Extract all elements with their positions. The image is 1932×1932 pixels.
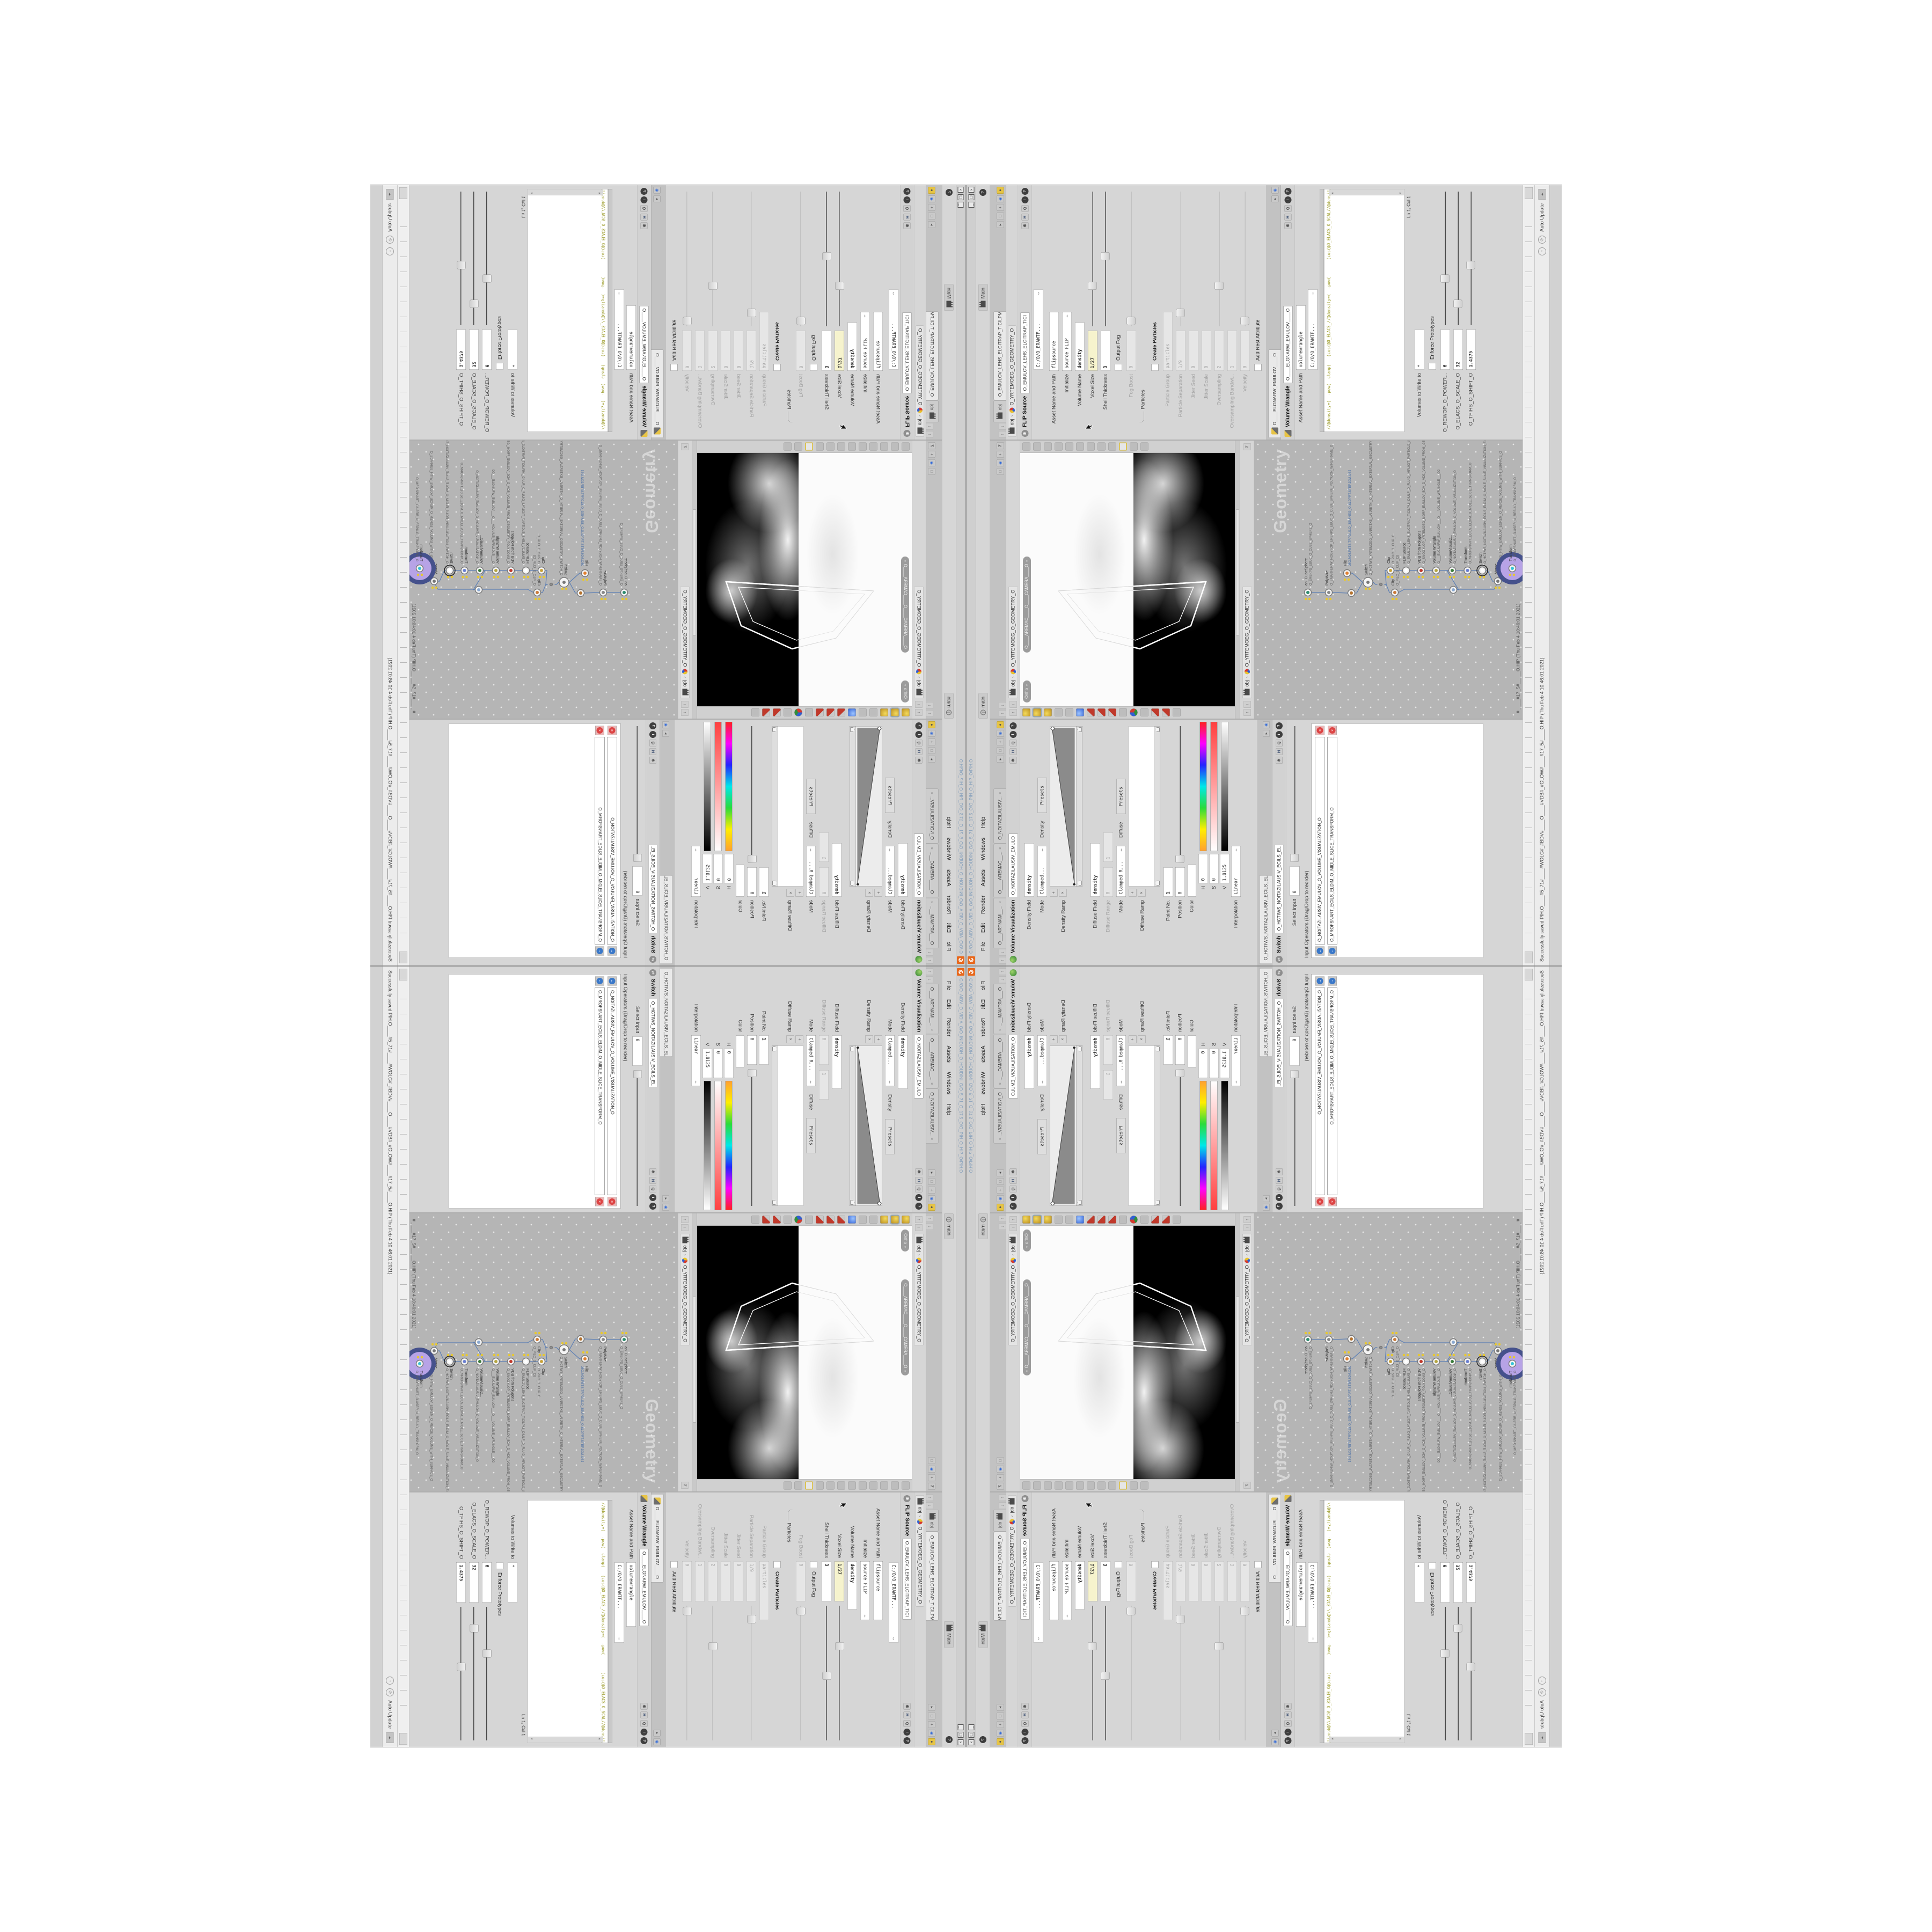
info-icon[interactable]: i — [1276, 1194, 1283, 1201]
pane-tab[interactable]: O_NOITAZILAUSIV...× — [926, 1089, 939, 1144]
ramp-marker[interactable] — [1155, 1047, 1160, 1051]
node-flag[interactable] — [1348, 1351, 1350, 1354]
menu-item[interactable]: File — [946, 942, 952, 951]
close-tab-icon[interactable]: × — [998, 1082, 1002, 1085]
node-flag[interactable] — [508, 1354, 511, 1357]
checkbox-label[interactable]: Output Fog — [811, 1571, 817, 1597]
pane-menu-icon[interactable]: ▸ — [928, 756, 935, 763]
asset-path-field[interactable]: C:/O/O_ERAWTF... — [889, 289, 898, 370]
vex-snippet-editor[interactable]: //@density=( -pow( clamp( (cos(@O_ELACS_… — [1320, 1500, 1404, 1743]
saturation-input[interactable]: 0 — [1209, 1049, 1219, 1078]
checkbox[interactable] — [496, 363, 503, 370]
refresh-icon[interactable]: ⟳ — [386, 236, 394, 244]
display-option-icon[interactable] — [869, 1481, 877, 1489]
node-flag[interactable] — [1395, 1332, 1398, 1335]
up-arrow-icon[interactable]: ↑ — [926, 957, 933, 964]
viewport-tool-icon[interactable] — [1173, 1216, 1181, 1224]
input-operator-field[interactable]: O_NOITAZILAUSIV_EMULOV_O_VOLUME_VISUALIZ… — [1315, 737, 1325, 944]
maximize-button[interactable]: ❐ — [968, 194, 974, 200]
presets-button[interactable]: Presets — [1116, 1118, 1126, 1153]
gear-icon[interactable]: ✱ — [649, 757, 656, 764]
diffuse-field-input[interactable]: density — [832, 1035, 841, 1089]
node-flag[interactable] — [1326, 598, 1328, 601]
mode2-dropdown[interactable]: Clamped R... — [1116, 846, 1126, 897]
viewport-tool-icon[interactable] — [848, 708, 856, 716]
viewport-tool-icon[interactable] — [1097, 708, 1106, 716]
maximize-button[interactable]: ❐ — [958, 194, 964, 200]
code-scrollbar-top[interactable] — [1320, 189, 1324, 432]
node[interactable] — [550, 1346, 553, 1349]
checkbox-label[interactable]: Create Particles — [1152, 1571, 1158, 1610]
down-arrow-icon[interactable]: ↓ — [926, 702, 933, 709]
display-option-icon[interactable] — [816, 1481, 824, 1489]
checkbox[interactable] — [1255, 364, 1262, 371]
viewport-tool-icon[interactable] — [869, 708, 877, 716]
switch-name-field[interactable]: O_HCTIWS_NOITAZILAUSIV_ECILS_EL — [648, 845, 657, 933]
close-tab-icon[interactable]: × — [998, 1029, 1002, 1031]
help-circle-icon[interactable]: ? — [916, 722, 923, 729]
breadcrumb[interactable]: obj › O_YRTEMOEG_O_GEOMETRY_O — [916, 1495, 924, 1607]
value-input[interactable]: 1.8125 — [1220, 854, 1230, 883]
info-icon[interactable]: i — [1284, 196, 1291, 203]
reorder-button[interactable]: ← — [1328, 947, 1337, 956]
input-operator-field[interactable]: O_MROFSNART_ECILS_ELDIM_O_MIDLE_SLICE_TR… — [1327, 988, 1337, 1195]
display-option-icon[interactable] — [1022, 1481, 1030, 1489]
ramp-marker[interactable] — [1078, 1047, 1082, 1051]
input-operator-field[interactable]: O_MROFSNART_ECILS_ELDIM_O_MIDLE_SLICE_TR… — [1327, 737, 1337, 944]
param-field[interactable]: 1 — [1227, 1561, 1237, 1601]
mode2-dropdown[interactable]: Clamped R... — [806, 846, 816, 897]
pane-menu-icon[interactable]: ▸ — [1263, 1195, 1270, 1202]
param-field[interactable]: 0 — [1189, 1561, 1198, 1601]
node-flag[interactable] — [604, 1332, 607, 1335]
input-operator-field[interactable]: O_NOITAZILAUSIV_EMULOV_O_VOLUME_VISUALIZ… — [1315, 988, 1325, 1195]
param-slider[interactable] — [456, 1607, 466, 1740]
minimize-button[interactable]: _ — [958, 202, 964, 208]
pane-snapshot-icon[interactable]: ● — [928, 1738, 935, 1745]
up-arrow-icon[interactable]: ↑ — [916, 709, 923, 716]
delete-operator-button[interactable]: × — [608, 1197, 617, 1206]
param-slider[interactable] — [1453, 1607, 1463, 1740]
menu-item[interactable]: Assets — [980, 1045, 986, 1063]
viewport-tool-icon[interactable] — [1108, 708, 1116, 716]
vex-code[interactable]: //@density=( -pow( clamp( (cos(@O_ELACS_… — [1324, 1500, 1404, 1743]
delete-point-button[interactable]: × — [1138, 1035, 1146, 1043]
delete-operator-button[interactable]: × — [608, 726, 617, 735]
help-circle-icon[interactable]: ? — [641, 188, 648, 195]
viewport-tool-icon[interactable] — [1055, 1216, 1063, 1224]
wrangle-name-field[interactable]: O____ELGNARW_EMULOV____O — [1283, 306, 1292, 383]
checkbox[interactable] — [1115, 1561, 1122, 1568]
checkbox-label[interactable]: Create Particles — [774, 322, 780, 361]
up-arrow-icon[interactable]: ↑ — [1243, 1216, 1250, 1223]
up-arrow-icon[interactable]: ↑ — [926, 1215, 933, 1222]
pane-link-icon[interactable]: ◉ — [997, 730, 1004, 737]
auto-update-selector[interactable]: Auto Update — [387, 1700, 393, 1729]
down-arrow-icon[interactable]: ↓ — [926, 976, 933, 983]
display-option-icon[interactable] — [859, 1481, 867, 1489]
value-slider[interactable] — [704, 1081, 711, 1210]
help-circle-icon[interactable]: ? — [1021, 1737, 1028, 1744]
hue-input[interactable]: 0 — [1198, 854, 1208, 883]
timeline-ticks[interactable] — [1525, 999, 1532, 1715]
mode-dropdown[interactable]: Clamped... — [885, 846, 895, 897]
pane-link-icon[interactable]: ◉ — [654, 1738, 661, 1745]
pane-link-icon[interactable]: ◉ — [928, 730, 935, 737]
ramp-marker[interactable] — [1155, 1201, 1160, 1205]
presets-button[interactable]: Presets — [1037, 1119, 1047, 1154]
pane-link-icon[interactable]: ◉ — [1263, 721, 1270, 728]
menu-item[interactable]: Help — [946, 817, 952, 829]
flip-name-field[interactable]: O_EMULOV_LEHS_ELCITRAP_TICI — [903, 1539, 912, 1619]
add-point-button[interactable]: + — [874, 889, 882, 897]
delete-point-button[interactable]: × — [865, 889, 873, 897]
pane-maximize-icon[interactable]: □ — [997, 1178, 1004, 1185]
param-field[interactable]: flipsource — [1049, 312, 1059, 371]
display-option-icon[interactable] — [837, 1481, 845, 1489]
pane-menu-icon[interactable]: ▸ — [928, 1169, 935, 1176]
param-field[interactable]: 0 — [1189, 331, 1198, 371]
delete-point-button[interactable]: × — [1138, 889, 1146, 897]
display-option-icon[interactable] — [784, 1481, 792, 1489]
viewport-tool-icon[interactable] — [891, 1216, 899, 1224]
radial-menu-selector[interactable]: main — [944, 1213, 954, 1239]
viewport-tool-icon[interactable] — [902, 1216, 910, 1224]
checkbox[interactable] — [810, 364, 817, 371]
node-flag[interactable] — [431, 587, 434, 589]
position-slider[interactable] — [1175, 1069, 1185, 1206]
node-flag[interactable] — [539, 576, 541, 579]
menu-item[interactable]: Render — [980, 1018, 986, 1036]
param-slider[interactable] — [1214, 192, 1224, 326]
breadcrumb[interactable]: obj › O_YRTEMOEG_O_GEOMETRY_O — [1008, 1495, 1016, 1607]
vex-code[interactable]: //@density=( -pow( clamp( (cos(@O_ELACS_… — [1324, 189, 1404, 432]
node-flag[interactable] — [1418, 576, 1421, 579]
close-tab-icon[interactable]: × — [930, 901, 934, 903]
node-flag[interactable] — [527, 1354, 530, 1357]
section-label[interactable]: Particles — [786, 1523, 792, 1542]
node-flag[interactable] — [497, 1354, 500, 1357]
viewport-tool-icon[interactable] — [784, 1216, 792, 1224]
node-flag[interactable] — [1344, 1351, 1346, 1354]
node-flag[interactable] — [565, 588, 568, 590]
node-flag[interactable] — [1308, 1332, 1311, 1335]
pane-link-icon[interactable]: ◉ — [1272, 1738, 1279, 1745]
param-field[interactable]: 2 — [708, 1561, 718, 1601]
help-circle-icon[interactable]: ? — [904, 188, 911, 195]
search-icon[interactable]: Q — [1284, 205, 1291, 212]
up-arrow-icon[interactable]: ↑ — [999, 710, 1006, 717]
wrangle-asset-name[interactable]: volumewrangle — [1296, 305, 1306, 370]
close-button[interactable]: × — [968, 1739, 974, 1745]
checkbox[interactable] — [1429, 363, 1436, 370]
camera-selector-pill[interactable]: O____AREMAC____O____CAMERA____O▾ — [901, 557, 909, 653]
ramp-marker[interactable] — [851, 727, 855, 731]
viewport-tool-icon[interactable] — [1076, 708, 1084, 716]
display-option-icon[interactable] — [1087, 443, 1095, 451]
view-mode-pill[interactable]: Ortho▾ — [1023, 680, 1031, 702]
node-flag[interactable] — [1392, 598, 1394, 601]
node-flag[interactable] — [497, 576, 500, 579]
pane-link-icon[interactable]: ◉ — [997, 1466, 1004, 1473]
node-flag[interactable] — [421, 1356, 423, 1359]
select-input-slider[interactable] — [633, 1070, 642, 1206]
radial-menu-selector[interactable]: main — [978, 1213, 988, 1239]
diffuse-ramp-widget[interactable] — [1129, 726, 1160, 887]
node-flag[interactable] — [1387, 1354, 1390, 1357]
close-tab-icon[interactable]: × — [998, 792, 1002, 794]
node-flag[interactable] — [421, 574, 423, 576]
menu-item[interactable]: File — [946, 981, 952, 990]
pane-tab[interactable]: O___ARTNAM__...× — [926, 984, 939, 1034]
mode2-dropdown[interactable]: Clamped R... — [1116, 1035, 1126, 1086]
pane-link-icon[interactable]: ◉ — [1263, 1204, 1270, 1211]
checkbox[interactable] — [810, 1561, 817, 1568]
node-flag[interactable] — [1513, 1356, 1516, 1359]
node-flag[interactable] — [601, 1332, 603, 1335]
network-editor[interactable]: Geometry # ____#17_5#_____O.HIP (Thu Feb… — [409, 1213, 678, 1491]
display-option-icon[interactable] — [891, 1481, 899, 1489]
camera-selector-pill[interactable]: O____AREMAC____O____CAMERA____O▾ — [901, 1279, 909, 1375]
pane-menu-icon[interactable]: ▸ — [1263, 730, 1270, 737]
node-flag[interactable] — [447, 576, 450, 579]
viewport-tool-icon[interactable] — [1065, 708, 1073, 716]
display-option-icon[interactable] — [837, 443, 845, 451]
pane-split-icon[interactable]: + — [997, 204, 1004, 211]
up-arrow-icon[interactable]: ↑ — [1243, 709, 1250, 716]
pane-maximize-icon[interactable]: □ — [928, 468, 935, 475]
param-field[interactable]: 0 — [1202, 1561, 1211, 1601]
checkbox[interactable] — [774, 1561, 781, 1568]
search-icon[interactable]: Q — [641, 1720, 648, 1727]
playbar-start-cap[interactable] — [399, 952, 407, 963]
pane-maximize-icon[interactable]: □ — [928, 1178, 935, 1185]
section-label[interactable]: Particles — [786, 390, 792, 409]
node-flag[interactable] — [1387, 576, 1390, 579]
pane-menu-icon[interactable]: ▸ — [928, 1704, 935, 1711]
select-input-field[interactable]: 0 — [1290, 1036, 1300, 1066]
position-slider[interactable] — [747, 726, 757, 863]
param-field[interactable]: 3 — [822, 1561, 831, 1601]
pane-split-icon[interactable]: + — [997, 451, 1004, 458]
checkbox[interactable] — [1115, 364, 1122, 371]
pane-tab[interactable]: O____AREMAC__...× — [926, 844, 939, 897]
help-icon[interactable]: ? — [979, 1736, 986, 1743]
viewport-tool-icon[interactable] — [762, 1216, 770, 1224]
close-button[interactable]: × — [958, 187, 964, 193]
param-field[interactable]: 3 — [1101, 1561, 1110, 1601]
breadcrumb[interactable]: obj › O_YRTEMOEG_O_GEOMETRY_O — [914, 1234, 924, 1345]
scene-viewport[interactable]: Ortho▾ O____AREMAC____O____CAMERA____O▾ — [1020, 441, 1235, 719]
menu-item[interactable]: Windows — [946, 837, 952, 860]
param-field[interactable]: 0 — [796, 1561, 806, 1601]
wrangle-asset-name[interactable]: volumewrangle — [626, 1562, 636, 1627]
viewport-tool-icon[interactable] — [816, 708, 824, 716]
node-flag[interactable] — [512, 1354, 515, 1357]
diffuse-field-input[interactable]: density — [1091, 1035, 1100, 1089]
gear-icon[interactable]: ✱ — [904, 222, 911, 229]
code-scrollbar[interactable] — [1329, 189, 1404, 195]
pin-icon[interactable]: ⊼ — [1243, 1482, 1250, 1489]
section-label[interactable]: Particles — [1140, 390, 1146, 409]
node-flag[interactable] — [1453, 576, 1455, 579]
param-field[interactable]: 32 — [469, 330, 479, 370]
help-circle-icon[interactable]: ? — [649, 1203, 656, 1210]
color-swatch[interactable] — [1188, 865, 1196, 897]
param-slider[interactable] — [1088, 1606, 1097, 1740]
param-slider[interactable] — [796, 1606, 806, 1740]
node-flag[interactable] — [465, 576, 468, 579]
param-field[interactable]: 1/27 — [1088, 1561, 1097, 1601]
pane-maximize-icon[interactable]: □ — [997, 1457, 1004, 1464]
checkbox-label[interactable]: Add Rest Attribute — [671, 319, 677, 361]
wrangle-name-field[interactable]: O____ELGNARW_EMULOV____O — [1283, 1549, 1292, 1626]
wrangle-pane-tab[interactable]: O____ELGNARW_EMULOV____O — [652, 1494, 664, 1582]
gear-icon[interactable]: ✱ — [1009, 1168, 1016, 1175]
node-flag[interactable] — [1479, 1354, 1482, 1357]
viewport-tool-icon[interactable] — [826, 708, 835, 716]
display-option-icon[interactable] — [902, 1481, 910, 1489]
node-flag[interactable] — [1395, 598, 1398, 601]
info-icon[interactable]: i — [649, 731, 656, 738]
refresh-icon[interactable]: ⟳ — [1538, 1688, 1546, 1696]
node-flag[interactable] — [604, 598, 607, 601]
param-field[interactable]: 1 — [695, 1561, 705, 1601]
auto-update-selector[interactable]: Auto Update — [1539, 1700, 1545, 1729]
add-point-button[interactable]: + — [874, 1035, 882, 1043]
param-slider[interactable] — [469, 192, 479, 325]
pane-menu-icon[interactable]: ▸ — [1272, 195, 1279, 202]
viewport-tool-icon[interactable] — [1119, 708, 1127, 716]
node-flag[interactable] — [1391, 576, 1394, 579]
checkbox-label[interactable]: Create Particles — [774, 1571, 780, 1610]
param-slider[interactable] — [822, 1606, 831, 1740]
display-option-icon[interactable] — [859, 443, 867, 451]
node-flag[interactable] — [1509, 574, 1512, 576]
viewport-tool-icon[interactable] — [1162, 1216, 1170, 1224]
obj-tab[interactable]: obj — [994, 401, 1006, 422]
pane-tab[interactable]: O____AREMAC__...× — [926, 1035, 939, 1088]
maximize-button[interactable]: ❐ — [968, 1732, 974, 1738]
viewport-tool-icon[interactable] — [826, 1216, 835, 1224]
help-circle-icon[interactable]: ? — [1284, 1737, 1291, 1744]
node-flag[interactable] — [1308, 598, 1311, 601]
display-option-icon[interactable] — [826, 443, 835, 451]
node-flag[interactable] — [462, 1354, 464, 1357]
param-slider[interactable] — [1176, 192, 1185, 326]
menu-item[interactable]: Render — [980, 896, 986, 914]
display-option-icon[interactable] — [1140, 1481, 1148, 1489]
node-graph[interactable]: an_CubeSphereO_EREHPS_EBUC_O_CUBE_SPHERE… — [409, 441, 678, 719]
pin-icon[interactable]: ⊼ — [682, 1482, 689, 1489]
node-flag[interactable] — [586, 1351, 589, 1354]
breadcrumb[interactable]: obj › O_YRTEMOEG_O_GEOMETRY_O — [1242, 1234, 1252, 1345]
playbar-start-cap[interactable] — [1525, 969, 1533, 980]
pane-maximize-icon[interactable]: □ — [997, 1713, 1004, 1719]
hue-input[interactable]: 0 — [1198, 1049, 1208, 1078]
minimize-button[interactable]: _ — [968, 202, 974, 208]
param-field[interactable]: 6 — [482, 1562, 492, 1602]
node-flag[interactable] — [1403, 1354, 1406, 1357]
horizontal-scrollbar[interactable] — [1235, 1213, 1240, 1491]
param-field[interactable]: 0 — [1202, 331, 1211, 371]
obj-tab[interactable]: obj — [926, 401, 939, 422]
viewport-tool-icon[interactable] — [751, 708, 759, 716]
value-slider[interactable] — [704, 722, 711, 851]
mode-dropdown[interactable]: Clamped... — [885, 1035, 895, 1086]
checkbox[interactable] — [1152, 364, 1159, 371]
up-arrow-icon[interactable]: ↑ — [926, 431, 933, 438]
display-option-icon[interactable] — [1087, 1481, 1095, 1489]
section-label[interactable]: Particles — [1140, 1523, 1146, 1542]
search-icon[interactable]: Q — [916, 1185, 923, 1192]
playbar-start-cap[interactable] — [1525, 952, 1533, 963]
hue-input[interactable]: 0 — [724, 854, 734, 883]
pane-menu-icon[interactable]: ▸ — [654, 1730, 661, 1737]
playbar-end-cap[interactable] — [1525, 187, 1533, 199]
delete-point-button[interactable]: × — [1059, 1035, 1067, 1043]
obj-tab[interactable]: obj — [994, 1510, 1006, 1531]
param-field[interactable]: density — [1075, 323, 1085, 371]
density-field-input[interactable]: density — [898, 1035, 908, 1089]
pane-maximize-icon[interactable]: □ — [928, 1457, 935, 1464]
node-flag[interactable] — [1437, 1354, 1439, 1357]
diffuse-field-input[interactable]: density — [1091, 843, 1100, 897]
density-ramp-widget[interactable] — [850, 726, 882, 887]
viewport-tool-icon[interactable] — [773, 708, 781, 716]
horizontal-scrollbar[interactable] — [1235, 441, 1240, 719]
info-icon[interactable]: i — [916, 1194, 923, 1201]
up-arrow-icon[interactable]: ↑ — [926, 710, 933, 717]
node-flag[interactable] — [1513, 574, 1516, 576]
param-field[interactable]: flipsource — [873, 1561, 883, 1620]
density-field-input[interactable]: density — [1024, 1035, 1034, 1089]
display-option-icon[interactable] — [1119, 443, 1127, 451]
node-flag[interactable] — [543, 576, 545, 579]
node-flag[interactable] — [1329, 1332, 1332, 1335]
viewport-tool-icon[interactable] — [869, 1216, 877, 1224]
up-arrow-icon[interactable]: ↑ — [682, 709, 689, 716]
wrangle-pane-tab[interactable]: O____ELGNARW_EMULOV____O — [652, 350, 664, 438]
timeline-ticks[interactable] — [400, 999, 407, 1715]
viewport-tool-icon[interactable] — [816, 1216, 824, 1224]
viewport-tool-icon[interactable] — [1087, 708, 1095, 716]
pane-link-icon[interactable]: ◉ — [928, 1195, 935, 1202]
help-circle-icon[interactable]: ? — [904, 1737, 911, 1744]
playbar[interactable] — [398, 967, 409, 1747]
param-slider[interactable] — [835, 1606, 844, 1740]
param-slider[interactable] — [482, 192, 492, 325]
down-arrow-icon[interactable]: ↓ — [926, 949, 933, 956]
param-field[interactable]: * — [508, 1562, 517, 1602]
down-arrow-icon[interactable]: ↓ — [999, 949, 1006, 956]
display-option-icon[interactable] — [1130, 443, 1138, 451]
node-flag[interactable] — [1479, 576, 1482, 579]
display-option-icon[interactable] — [805, 443, 813, 451]
param-slider[interactable] — [682, 192, 692, 326]
playbar-start-cap[interactable] — [399, 969, 407, 980]
node-flag[interactable] — [1391, 1354, 1394, 1357]
node-flag[interactable] — [1468, 1354, 1470, 1357]
node-flag[interactable] — [451, 576, 453, 579]
select-input-slider[interactable] — [1290, 1070, 1300, 1206]
down-arrow-icon[interactable]: ↓ — [1009, 1224, 1016, 1231]
param-field[interactable]: * — [1415, 330, 1424, 370]
breadcrumb[interactable]: obj › O_YRTEMOEG_O_GEOMETRY_O — [680, 587, 690, 698]
view-mode-pill[interactable]: Ortho▾ — [901, 680, 909, 702]
param-field[interactable]: * — [1415, 1562, 1424, 1602]
viewport-tool-icon[interactable] — [784, 708, 792, 716]
